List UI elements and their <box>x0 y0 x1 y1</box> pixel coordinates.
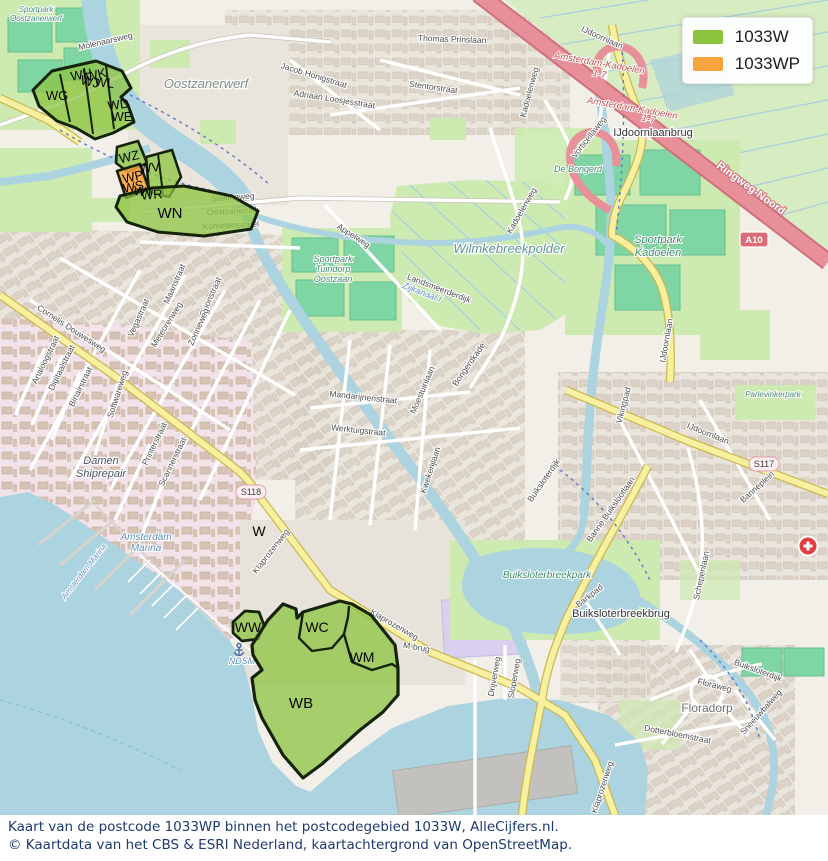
region-label: WE <box>112 109 133 124</box>
area-label: Oostzanerwerf <box>164 76 250 91</box>
map-viewport[interactable]: Molenaarsweg Thomas Prinslaan Stentorstr… <box>0 0 828 815</box>
area-label: Sportpark <box>19 5 55 14</box>
region-label: WW <box>235 619 262 635</box>
legend-item-1033WP: 1033WP <box>693 54 800 74</box>
water-label: NDSM <box>229 656 256 666</box>
caption-line-1: Kaart van de postcode 1033WP binnen het … <box>8 818 820 836</box>
legend-item-1033W: 1033W <box>693 27 800 47</box>
road-ref: S118 <box>241 487 261 497</box>
region-label: WG <box>46 88 68 103</box>
region-label: W <box>252 523 266 539</box>
bridge-label: IJdoornlaanbrug <box>613 127 693 139</box>
water-label: Marina <box>131 543 162 554</box>
area-label: Oostzanerwerf <box>10 14 63 23</box>
region-label: WV <box>138 159 161 176</box>
area-label: Shiprepair <box>76 468 127 480</box>
water-label: Amsterdam <box>119 532 171 543</box>
motorway-ref: A10 <box>745 235 762 246</box>
area-label: Parlevinkerpark <box>745 390 802 399</box>
caption-line-2: © Kaartdata van het CBS & ESRI Nederland… <box>8 836 820 854</box>
bridge-label: Buiksloterbreekbrug <box>572 608 670 620</box>
area-label: Sportpark <box>313 254 353 264</box>
legend-label: 1033W <box>735 27 789 47</box>
area-label: Sportpark <box>634 234 682 246</box>
region-label: WR <box>140 186 163 202</box>
region-label: WN <box>158 205 183 222</box>
legend-swatch-green <box>693 30 723 44</box>
area-label: Floradorp <box>681 701 733 715</box>
area-label: De Bongerd <box>554 164 603 174</box>
area-label: Oostzaan <box>314 274 353 284</box>
area-label: Tuindorp <box>316 264 351 274</box>
legend-label: 1033WP <box>735 54 800 74</box>
map-caption: Kaart van de postcode 1033WP binnen het … <box>0 815 828 861</box>
area-label: Buiksloterbreekpark <box>503 570 592 581</box>
area-label: Damen <box>83 455 118 467</box>
area-label: Kadoelen <box>635 247 682 259</box>
region-label: WC <box>305 619 328 635</box>
area-label: Wilmkebreekpolder <box>453 241 565 256</box>
region-label: WL <box>94 74 115 91</box>
region-label: WB <box>289 695 313 712</box>
map-legend: 1033W 1033WP <box>682 17 813 84</box>
legend-swatch-orange <box>693 57 723 71</box>
map-screenshot: Molenaarsweg Thomas Prinslaan Stentorstr… <box>0 0 828 861</box>
road-ref: S117 <box>754 459 774 469</box>
map-canvas[interactable]: Molenaarsweg Thomas Prinslaan Stentorstr… <box>0 0 828 815</box>
health-marker-icon[interactable] <box>799 537 818 556</box>
region-label: WM <box>350 649 375 665</box>
